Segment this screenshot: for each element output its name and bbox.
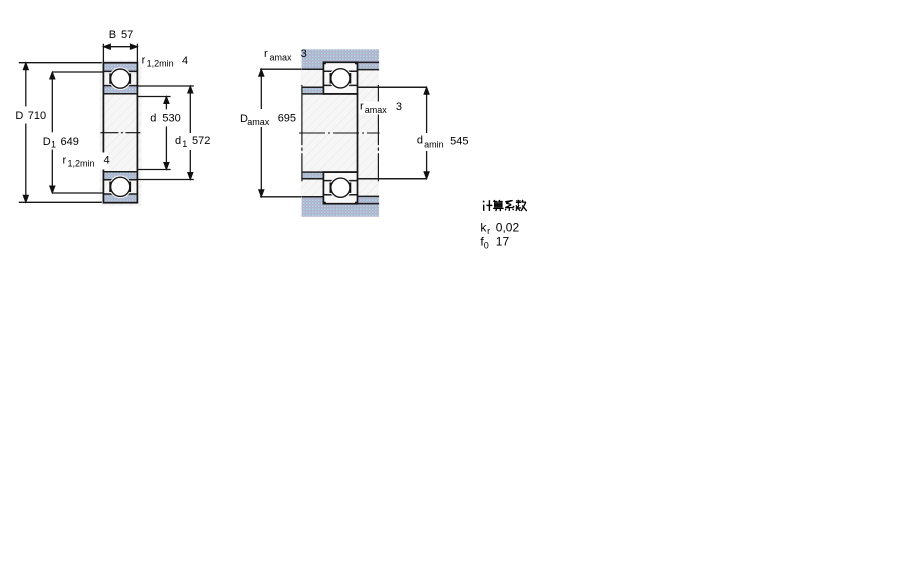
svg-text:1: 1 [182, 139, 187, 149]
svg-text:d: d [417, 135, 423, 147]
svg-text:1,2min: 1,2min [147, 59, 174, 69]
svg-text:3: 3 [301, 48, 307, 60]
svg-text:710: 710 [28, 110, 46, 122]
svg-text:r: r [360, 101, 364, 113]
svg-text:649: 649 [61, 136, 79, 148]
svg-text:3: 3 [396, 101, 402, 113]
svg-text:d: d [150, 113, 156, 125]
svg-text:545: 545 [450, 135, 468, 147]
svg-text:amax: amax [365, 105, 388, 115]
svg-text:D: D [15, 110, 23, 122]
svg-text:1,2min: 1,2min [68, 159, 95, 169]
svg-text:r: r [487, 226, 490, 236]
svg-text:695: 695 [278, 113, 296, 125]
svg-text:r: r [63, 154, 67, 166]
svg-text:1: 1 [51, 140, 56, 150]
svg-text:r: r [264, 48, 268, 60]
svg-text:572: 572 [192, 135, 210, 147]
svg-text:4: 4 [104, 155, 110, 167]
svg-text:0: 0 [484, 240, 489, 250]
svg-text:4: 4 [182, 55, 188, 67]
svg-text:amax: amax [270, 53, 293, 63]
svg-text:amax: amax [247, 117, 270, 127]
svg-text:d: d [175, 135, 181, 147]
svg-text:57: 57 [121, 29, 133, 41]
svg-text:0,02: 0,02 [496, 221, 520, 235]
svg-text:17: 17 [496, 234, 510, 248]
svg-text:amin: amin [424, 140, 444, 150]
svg-text:r: r [142, 54, 146, 66]
svg-text:D: D [43, 136, 51, 148]
svg-text:B: B [109, 29, 116, 41]
svg-text:530: 530 [162, 113, 180, 125]
